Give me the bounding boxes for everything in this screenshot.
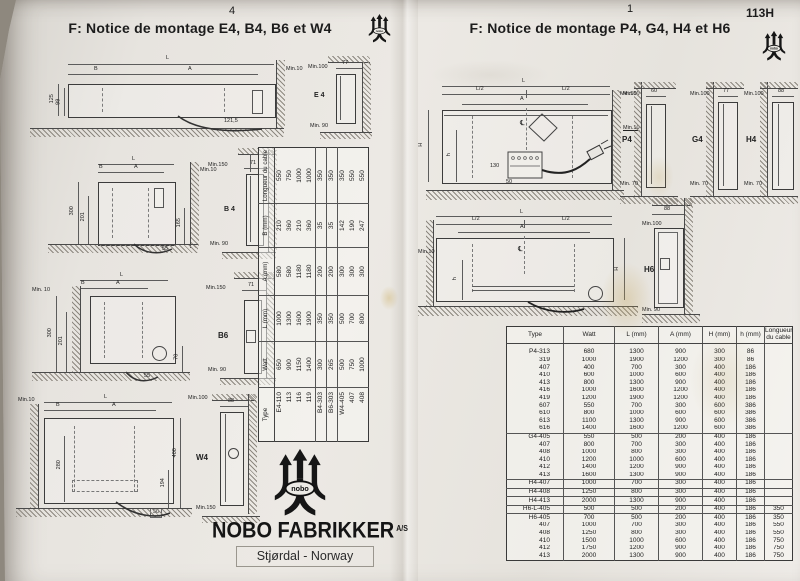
table-cell: 200 bbox=[659, 505, 703, 514]
dim-line bbox=[652, 214, 684, 215]
dim-label: Min. 90 bbox=[208, 368, 226, 374]
table-cell: 300 bbox=[703, 357, 737, 365]
table-row: 419120019001200400186 bbox=[507, 395, 793, 403]
dim-label: 130 bbox=[490, 164, 499, 170]
table-row: 1161150160011802101000 bbox=[295, 148, 305, 442]
page-title: F: Notice de montage P4, G4, H4 et H6 bbox=[430, 20, 770, 36]
model-label: B6 bbox=[218, 332, 228, 340]
table-cell: 300 bbox=[659, 522, 703, 530]
table-row: 4106001000600400186 bbox=[507, 372, 793, 380]
dim-label: 77 bbox=[723, 89, 729, 95]
table-cell: 616 bbox=[507, 425, 564, 433]
logo-text: nobo bbox=[291, 484, 309, 493]
side-view-h6: 88 Min.100 H6 Min. 90 bbox=[642, 192, 706, 328]
table-cell: 1300 bbox=[615, 552, 659, 560]
table-cell: 500 bbox=[338, 342, 349, 388]
table-cell: 1000 bbox=[564, 357, 615, 365]
dim-line bbox=[718, 96, 738, 97]
table-cell: 900 bbox=[659, 472, 703, 480]
wall-hatch bbox=[248, 394, 257, 514]
table-cell: 900 bbox=[285, 342, 295, 388]
wall-hatch bbox=[362, 62, 371, 132]
table-cell: 610 bbox=[507, 410, 564, 418]
side-view-h4: Min.100 88 H4 Min. 70 bbox=[744, 78, 800, 212]
table-cell: 1300 bbox=[615, 344, 659, 357]
brand-wordmark: NOBO FABRIKKERA/S bbox=[212, 519, 408, 545]
panel-line bbox=[651, 106, 652, 184]
dim-label: 60 bbox=[651, 89, 657, 95]
table-cell: 86 bbox=[737, 357, 765, 365]
table-cell: 186 bbox=[737, 480, 765, 489]
table-row: B6-30326535020035350 bbox=[327, 148, 338, 442]
table-cell: 186 bbox=[737, 364, 765, 372]
table-cell: 400 bbox=[703, 514, 737, 522]
table-cell: 35 bbox=[316, 204, 327, 248]
column-header: A (mm) bbox=[259, 248, 275, 296]
table-cell: 412 bbox=[507, 464, 564, 472]
dim-label: Min. 90 bbox=[642, 308, 660, 314]
heater-side-e4 bbox=[336, 74, 356, 124]
table-cell: 116 bbox=[295, 388, 305, 442]
heater-side-g4 bbox=[718, 102, 738, 190]
dim-label: Min. 90 bbox=[210, 242, 228, 248]
table-row: 31910001900120030086 bbox=[507, 357, 793, 365]
table-cell: 400 bbox=[703, 372, 737, 380]
table-cell: 400 bbox=[703, 537, 737, 545]
table-cell bbox=[765, 497, 793, 506]
table-cell: 186 bbox=[737, 372, 765, 380]
table-cell: 400 bbox=[703, 505, 737, 514]
table-cell: 1750 bbox=[564, 545, 615, 553]
table-cell: 900 bbox=[659, 545, 703, 553]
table-cell bbox=[765, 387, 793, 395]
table-cell: 700 bbox=[615, 441, 659, 449]
table-cell: 550 bbox=[765, 530, 793, 538]
column-header: Type bbox=[259, 388, 275, 442]
table-cell: 750 bbox=[285, 148, 295, 204]
table-cell: H4-407 bbox=[507, 480, 564, 489]
scanned-document: 4 F: Notice de montage E4, B4, B6 et W4 … bbox=[0, 0, 800, 581]
table-cell: 1150 bbox=[295, 342, 305, 388]
table-cell: P4-313 bbox=[507, 344, 564, 357]
table-cell: 1300 bbox=[615, 472, 659, 480]
panel-line bbox=[778, 104, 779, 186]
table-cell: 350 bbox=[316, 296, 327, 342]
control-unit bbox=[660, 258, 670, 270]
table-cell: 1900 bbox=[615, 357, 659, 365]
dim-label: Min.100 bbox=[188, 396, 208, 402]
table-row: 407400700300400186 bbox=[507, 364, 793, 372]
column-header: Watt bbox=[259, 342, 275, 388]
table-cell: 600 bbox=[703, 425, 737, 433]
table-cell: 700 bbox=[615, 402, 659, 410]
table-cell: 190 bbox=[348, 204, 358, 248]
table-cell: 408 bbox=[507, 530, 564, 538]
model-label: H4 bbox=[746, 136, 756, 144]
table-row: E4-1106501000580210550 bbox=[275, 148, 286, 442]
floor-hatch bbox=[744, 196, 798, 204]
table-cell: 600 bbox=[564, 372, 615, 380]
control-unit bbox=[246, 330, 256, 343]
table-cell: 186 bbox=[737, 514, 765, 522]
table-cell: 1000 bbox=[564, 480, 615, 489]
table-cell: 1400 bbox=[305, 342, 316, 388]
spec-table-left-wrap: TypeWattL (mm)A (mm)B (mm)Longueur du ca… bbox=[258, 148, 370, 442]
column-header: Longueur du cable bbox=[259, 148, 275, 204]
table-cell: 750 bbox=[765, 552, 793, 560]
table-cell: 700 bbox=[348, 296, 358, 342]
dim-line bbox=[646, 96, 666, 97]
side-detail bbox=[228, 448, 239, 459]
wall-hatch bbox=[706, 82, 714, 196]
table-cell: 408 bbox=[507, 449, 564, 457]
table-cell: 400 bbox=[703, 395, 737, 403]
table-cell: 186 bbox=[737, 464, 765, 472]
table-cell: 350 bbox=[316, 148, 327, 204]
table-cell bbox=[765, 417, 793, 425]
table-cell: 650 bbox=[275, 342, 286, 388]
spec-table-right: TypeWattL (mm)A (mm)H (mm)h (mm)Longueur… bbox=[506, 326, 793, 561]
table-cell: 413 bbox=[507, 552, 564, 560]
table-cell: 1300 bbox=[285, 296, 295, 342]
table-cell: 900 bbox=[659, 464, 703, 472]
table-cell: 600 bbox=[703, 402, 737, 410]
table-cell: 800 bbox=[564, 379, 615, 387]
table-cell: 186 bbox=[737, 472, 765, 480]
table-cell: 200 bbox=[327, 248, 338, 296]
table-cell: H6-L-405 bbox=[507, 505, 564, 514]
table-cell: 1200 bbox=[564, 456, 615, 464]
table-cell: 600 bbox=[659, 410, 703, 418]
table-cell: 600 bbox=[703, 417, 737, 425]
table-cell: 900 bbox=[659, 552, 703, 560]
table-row: 407750700300190550 bbox=[348, 148, 358, 442]
table-cell: 350 bbox=[338, 148, 349, 204]
nobo-logo-icon: nobo bbox=[368, 13, 391, 45]
table-cell: 700 bbox=[615, 522, 659, 530]
table-cell: 800 bbox=[615, 449, 659, 457]
table-cell: 410 bbox=[507, 456, 564, 464]
table-cell: 1400 bbox=[564, 464, 615, 472]
table-cell: 142 bbox=[338, 204, 349, 248]
table-cell: 400 bbox=[703, 387, 737, 395]
dim-label: Min. 70 bbox=[690, 182, 708, 188]
model-label: P4 bbox=[622, 136, 632, 144]
table-cell: 319 bbox=[507, 357, 564, 365]
left-page: 4 F: Notice de montage E4, B4, B6 et W4 … bbox=[0, 0, 400, 581]
table-row: H6-405700500200400186350 bbox=[507, 514, 793, 522]
table-cell: 1000 bbox=[305, 148, 316, 204]
table-cell: 1200 bbox=[615, 545, 659, 553]
dim-label: Min.150 bbox=[206, 286, 226, 292]
table-cell: 900 bbox=[659, 379, 703, 387]
spec-table-left: TypeWattL (mm)A (mm)B (mm)Longueur du ca… bbox=[258, 147, 369, 442]
table-cell: 900 bbox=[659, 417, 703, 425]
table-cell: 1000 bbox=[564, 449, 615, 457]
table-cell: 186 bbox=[737, 505, 765, 514]
table-cell: 200 bbox=[659, 433, 703, 441]
table-cell bbox=[765, 441, 793, 449]
table-cell: 113 bbox=[285, 388, 295, 442]
panel-line bbox=[340, 76, 341, 120]
table-cell: 186 bbox=[737, 545, 765, 553]
table-cell: 550 bbox=[358, 148, 369, 204]
table-row: H6-L-405500500200400186350 bbox=[507, 505, 793, 514]
table-cell: 186 bbox=[737, 395, 765, 403]
table-cell: H4-413 bbox=[507, 497, 564, 506]
dim-label: Min. 90 bbox=[310, 124, 328, 130]
table-cell: 186 bbox=[737, 497, 765, 506]
table-cell: 1000 bbox=[615, 537, 659, 545]
model-label: H6 bbox=[644, 266, 654, 274]
table-cell: 1180 bbox=[305, 248, 316, 296]
dim-label: 88 bbox=[228, 399, 234, 405]
table-cell: H4-408 bbox=[507, 488, 564, 497]
table-cell: 200 bbox=[316, 248, 327, 296]
table-row: W4-405500500300142350 bbox=[338, 148, 349, 442]
table-cell: 407 bbox=[507, 364, 564, 372]
right-page: 1 113H F: Notice de montage P4, G4, H4 e… bbox=[400, 0, 800, 581]
nobo-logo-icon: nobo bbox=[762, 30, 786, 63]
table-cell: 300 bbox=[358, 248, 369, 296]
table-cell: 680 bbox=[564, 344, 615, 357]
table-row: 4081000800300247550 bbox=[358, 148, 369, 442]
table-row: 41217501200900400186750 bbox=[507, 545, 793, 553]
table-cell: 410 bbox=[507, 372, 564, 380]
table-cell: 1600 bbox=[615, 425, 659, 433]
table-cell bbox=[765, 344, 793, 357]
table-cell: 386 bbox=[737, 425, 765, 433]
b4-diagram: L B A Min.10 300 201 165 55 Min bbox=[42, 148, 282, 276]
table-cell: W4-405 bbox=[338, 388, 349, 442]
table-cell: 186 bbox=[737, 441, 765, 449]
header-row: TypeWattL (mm)A (mm)H (mm)h (mm)Longueur… bbox=[507, 327, 793, 344]
heater-side-w4 bbox=[220, 412, 244, 506]
table-row: 4081250800300400186550 bbox=[507, 530, 793, 538]
heater-side-h4 bbox=[772, 102, 794, 190]
dim-label: Min.100 bbox=[308, 65, 328, 71]
logo-text: nobo bbox=[770, 47, 778, 51]
dim-line bbox=[772, 96, 794, 97]
column-header: h (mm) bbox=[737, 327, 765, 344]
dim-label: Min.50 bbox=[620, 92, 637, 98]
table-row: H4-4071000700300400186 bbox=[507, 480, 793, 489]
table-row: 41316001300900400186 bbox=[507, 472, 793, 480]
table-cell: 400 bbox=[703, 552, 737, 560]
table-cell: 186 bbox=[737, 552, 765, 560]
dim-label: 88 bbox=[664, 207, 670, 213]
table-cell: 1400 bbox=[564, 425, 615, 433]
table-cell: H6-405 bbox=[507, 514, 564, 522]
dim-label: Min.100 bbox=[690, 92, 710, 98]
table-cell: 400 bbox=[703, 464, 737, 472]
table-cell: 613 bbox=[507, 417, 564, 425]
table-cell bbox=[765, 395, 793, 403]
table-cell: 186 bbox=[737, 387, 765, 395]
dim-label: Min. 70 bbox=[620, 182, 638, 188]
table-cell: 400 bbox=[703, 530, 737, 538]
table-cell: G4-405 bbox=[507, 433, 564, 441]
table-cell: 350 bbox=[765, 514, 793, 522]
doc-code: 113H bbox=[746, 6, 774, 20]
table-cell: 408 bbox=[358, 388, 369, 442]
column-header: L (mm) bbox=[615, 327, 659, 344]
table-cell: 400 bbox=[703, 449, 737, 457]
table-cell: 386 bbox=[737, 417, 765, 425]
dim-label: 88 bbox=[778, 89, 784, 95]
table-cell: 1200 bbox=[659, 387, 703, 395]
table-cell: 1000 bbox=[295, 148, 305, 204]
table-cell: 900 bbox=[659, 344, 703, 357]
table-cell: 1600 bbox=[564, 472, 615, 480]
e4-diagram: L B A Min.10 125 99 121,5 bbox=[28, 52, 380, 144]
dim-label: 77 bbox=[342, 61, 348, 67]
table-cell: 1000 bbox=[564, 387, 615, 395]
table-row: 41320001300900400186750 bbox=[507, 552, 793, 560]
table-cell: 1200 bbox=[659, 357, 703, 365]
model-label: E 4 bbox=[314, 92, 325, 99]
table-cell: 600 bbox=[659, 537, 703, 545]
model-label: G4 bbox=[692, 136, 703, 144]
table-cell: 550 bbox=[564, 402, 615, 410]
cable-drawing bbox=[30, 272, 280, 406]
table-cell: B4-303 bbox=[316, 388, 327, 442]
table-cell: 550 bbox=[348, 148, 358, 204]
table-cell: 210 bbox=[295, 204, 305, 248]
model-label: B 4 bbox=[224, 206, 235, 213]
brand-text: NOBO FABRIKKER bbox=[212, 519, 394, 544]
table-cell: 1000 bbox=[564, 522, 615, 530]
table-cell: 550 bbox=[564, 433, 615, 441]
dim-label: Min. 70 bbox=[744, 182, 762, 188]
table-row: P4-313680130090030086 bbox=[507, 344, 793, 357]
column-header: H (mm) bbox=[703, 327, 737, 344]
panel-line bbox=[250, 176, 251, 242]
panel-line bbox=[225, 414, 226, 502]
table-row: 4071000700300400186550 bbox=[507, 522, 793, 530]
table-cell: 550 bbox=[765, 522, 793, 530]
table-cell bbox=[765, 410, 793, 418]
dim-label: 121,5 bbox=[224, 119, 238, 125]
table-cell bbox=[765, 364, 793, 372]
table-cell: 400 bbox=[703, 522, 737, 530]
dim-label: Min.100 bbox=[642, 222, 662, 228]
table-cell bbox=[765, 472, 793, 480]
table-cell: 400 bbox=[703, 545, 737, 553]
table-cell: 1200 bbox=[659, 395, 703, 403]
column-header: Longueur du cable bbox=[765, 327, 793, 344]
table-cell: B6-303 bbox=[327, 388, 338, 442]
table-cell: 1100 bbox=[564, 417, 615, 425]
column-header: A (mm) bbox=[659, 327, 703, 344]
table-cell bbox=[765, 449, 793, 457]
table-cell: 607 bbox=[507, 402, 564, 410]
table-cell: 86 bbox=[737, 344, 765, 357]
table-cell: 700 bbox=[615, 480, 659, 489]
table-cell: 400 bbox=[703, 497, 737, 506]
table-cell bbox=[765, 402, 793, 410]
table-row: 1139001300580360750 bbox=[285, 148, 295, 442]
table-row: 4081000800300400186 bbox=[507, 449, 793, 457]
table-cell: 210 bbox=[275, 204, 286, 248]
table-cell: 350 bbox=[765, 505, 793, 514]
w4-diagram: Min.10 L B A 280 400 194 50 bbox=[16, 392, 266, 532]
table-cell: 300 bbox=[659, 402, 703, 410]
table-cell: 407 bbox=[348, 388, 358, 442]
table-cell: 119 bbox=[305, 388, 316, 442]
wall-hatch bbox=[634, 82, 642, 196]
column-header: L (mm) bbox=[259, 296, 275, 342]
dim-label: Min.150 bbox=[208, 163, 228, 169]
table-cell: 800 bbox=[564, 441, 615, 449]
table-cell: 800 bbox=[615, 488, 659, 497]
logo-text: nobo bbox=[376, 29, 384, 33]
table-cell: 350 bbox=[327, 148, 338, 204]
table-cell: 400 bbox=[703, 433, 737, 441]
table-cell: 247 bbox=[358, 204, 369, 248]
wall-hatch bbox=[684, 198, 693, 314]
table-cell: 700 bbox=[564, 514, 615, 522]
table-row: H4-41320001300900400186 bbox=[507, 497, 793, 506]
table-cell bbox=[765, 488, 793, 497]
table-cell: 500 bbox=[615, 433, 659, 441]
table-cell: 407 bbox=[507, 441, 564, 449]
table-cell: 400 bbox=[703, 472, 737, 480]
heater-side-p4 bbox=[646, 104, 666, 188]
table-cell: 1600 bbox=[615, 387, 659, 395]
table-row: 4138001300900400186 bbox=[507, 379, 793, 387]
table-cell: 410 bbox=[507, 537, 564, 545]
table-cell: 400 bbox=[703, 441, 737, 449]
table-cell: 300 bbox=[659, 441, 703, 449]
table-cell: 2000 bbox=[564, 552, 615, 560]
table-cell bbox=[765, 464, 793, 472]
table-cell: 600 bbox=[703, 410, 737, 418]
table-cell: 360 bbox=[305, 204, 316, 248]
table-cell: 1200 bbox=[659, 425, 703, 433]
table-cell: 1000 bbox=[615, 456, 659, 464]
table-cell: 600 bbox=[659, 456, 703, 464]
table-cell: 1250 bbox=[564, 488, 615, 497]
table-cell: 300 bbox=[338, 248, 349, 296]
table-cell: 400 bbox=[703, 364, 737, 372]
table-cell: 200 bbox=[659, 514, 703, 522]
table-cell: 1900 bbox=[615, 395, 659, 403]
table-cell: 1300 bbox=[615, 417, 659, 425]
panel-line bbox=[723, 104, 724, 186]
table-cell bbox=[765, 425, 793, 433]
table-cell: 360 bbox=[285, 204, 295, 248]
table-cell: 300 bbox=[659, 364, 703, 372]
table-cell: 300 bbox=[659, 449, 703, 457]
table-row: 607550700300600386 bbox=[507, 402, 793, 410]
table-row: G4-405550500200400186 bbox=[507, 433, 793, 441]
table-cell: 700 bbox=[615, 364, 659, 372]
table-cell: 412 bbox=[507, 545, 564, 553]
table-cell: 2000 bbox=[564, 497, 615, 506]
b6-diagram: Min. 10 L B A 300 201 70 55 bbox=[30, 272, 280, 406]
dim-line bbox=[220, 406, 248, 407]
table-cell: 1600 bbox=[295, 296, 305, 342]
table-row: 61311001300900600386 bbox=[507, 417, 793, 425]
table-cell: 750 bbox=[765, 545, 793, 553]
table-cell: 400 bbox=[703, 379, 737, 387]
table-cell: 1300 bbox=[615, 379, 659, 387]
table-row: 41015001000600400186750 bbox=[507, 537, 793, 545]
table-cell: 1000 bbox=[615, 410, 659, 418]
table-cell: 1500 bbox=[564, 537, 615, 545]
column-header: B (mm) bbox=[259, 204, 275, 248]
